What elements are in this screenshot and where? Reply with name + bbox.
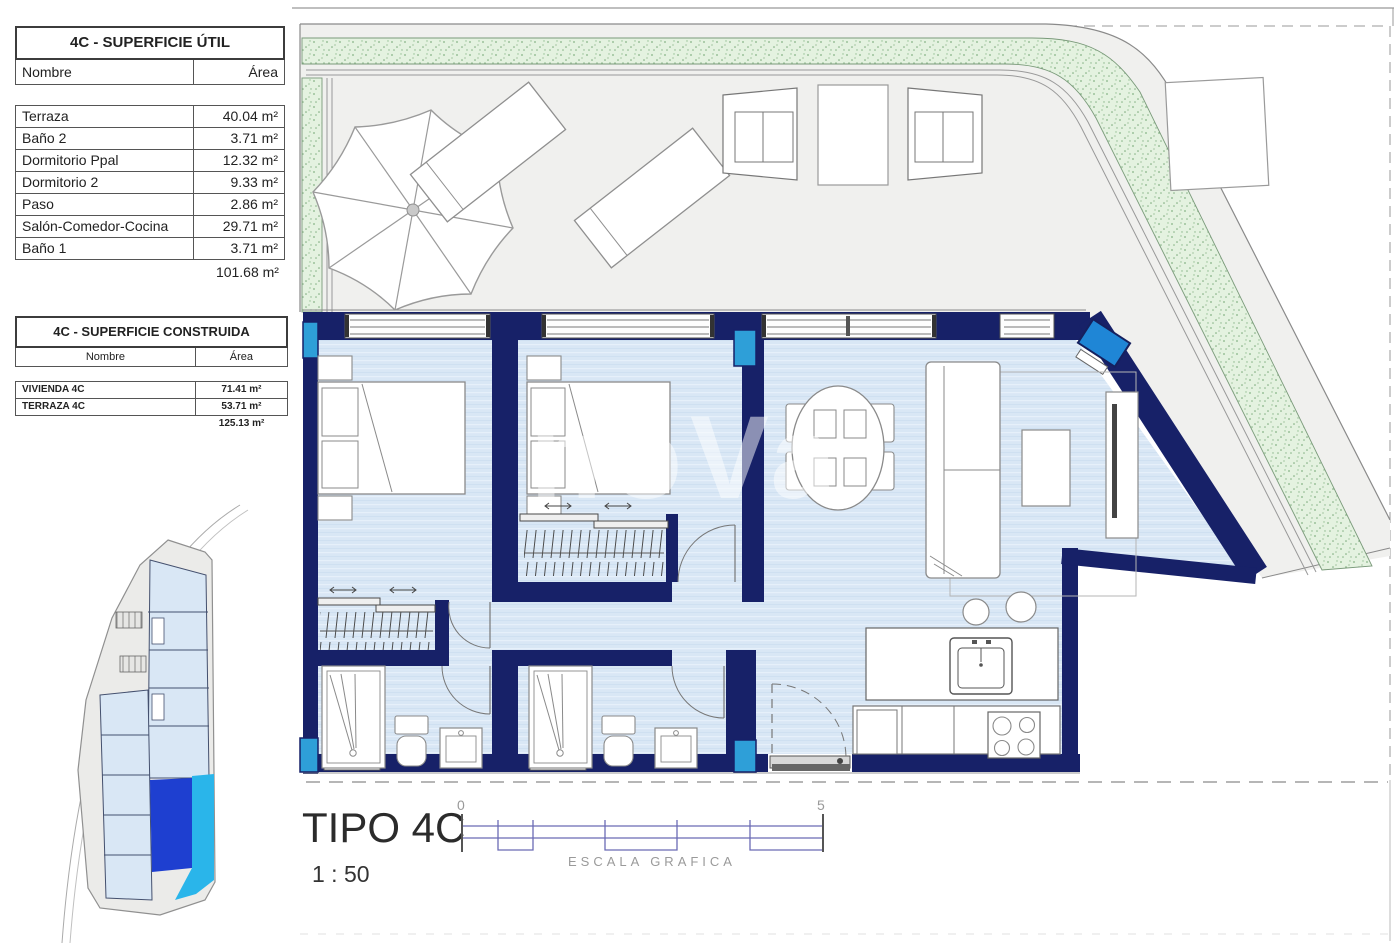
table-total-row: 101.68 m² xyxy=(15,260,285,284)
table-row: TERRAZA 4C 53.71 m² xyxy=(15,399,288,416)
room-name: Dormitorio 2 xyxy=(16,172,193,193)
key-plan-highlight-vivienda xyxy=(150,778,192,872)
column-header-nombre: Nombre xyxy=(16,60,193,84)
room-area: 2.86 m² xyxy=(193,194,284,215)
plan-title: TIPO 4C xyxy=(302,804,465,851)
room-name: TERRAZA 4C xyxy=(16,399,195,415)
hob-icon xyxy=(988,712,1040,758)
scale-bar-caption: ESCALA GRAFICA xyxy=(568,854,736,869)
table-row: Dormitorio 2 9.33 m² xyxy=(15,172,285,194)
room-name: Baño 2 xyxy=(16,128,193,149)
plan-scale: 1 : 50 xyxy=(312,861,370,887)
title-block: TIPO 4C 1 : 50 0 5 ESCALA GRAFICA xyxy=(302,797,825,887)
room-name: Paso xyxy=(16,194,193,215)
scale-bar: 0 5 ESCALA GRAFICA xyxy=(457,797,825,869)
superficie-util-table: 4C - SUPERFICIE ÚTIL Nombre Área Terraza… xyxy=(15,26,285,284)
stairs-icon xyxy=(116,612,142,628)
stairs-icon xyxy=(120,656,146,672)
stool xyxy=(963,599,989,625)
shower-icon xyxy=(322,666,385,768)
terrace-table xyxy=(818,85,888,185)
apartment xyxy=(300,312,1256,774)
total-area: 125.13 m² xyxy=(195,416,288,432)
toilet-icon xyxy=(395,716,428,766)
column-header-nombre: Nombre xyxy=(16,348,195,366)
table-row: VIVIENDA 4C 71.41 m² xyxy=(15,382,288,399)
room-name: Baño 1 xyxy=(16,238,193,259)
room-area: 71.41 m² xyxy=(195,382,287,398)
sink-icon xyxy=(655,728,697,768)
room-name: Terraza xyxy=(16,106,193,127)
terrace-lounge-table xyxy=(1165,78,1269,191)
sink-icon xyxy=(440,728,482,768)
room-name: VIVIENDA 4C xyxy=(16,382,195,398)
column-header-area: Área xyxy=(195,348,287,366)
tv-unit xyxy=(1106,392,1138,538)
kitchen-island xyxy=(866,628,1058,700)
shower-icon xyxy=(529,666,592,768)
superficie-construida-table: 4C - SUPERFICIE CONSTRUIDA Nombre Área V… xyxy=(15,316,288,432)
key-plan xyxy=(62,505,248,943)
room-area: 53.71 m² xyxy=(195,399,287,415)
table-row: Baño 1 3.71 m² xyxy=(15,238,285,260)
table-header: Nombre Área xyxy=(15,60,285,85)
scale-bar-end: 5 xyxy=(817,797,825,813)
terrace-armchair xyxy=(908,88,982,180)
table-row: Salón-Comedor-Cocina 29.71 m² xyxy=(15,216,285,238)
room-area: 3.71 m² xyxy=(193,128,284,149)
table-header: Nombre Área xyxy=(15,348,288,367)
table-body: VIVIENDA 4C 71.41 m² TERRAZA 4C 53.71 m² xyxy=(15,381,288,416)
terrace-armchair xyxy=(723,88,797,180)
column-header-area: Área xyxy=(193,60,284,84)
room-name: Dormitorio Ppal xyxy=(16,150,193,171)
table-body: Terraza 40.04 m² Baño 2 3.71 m² Dormitor… xyxy=(15,105,285,260)
toilet-icon xyxy=(602,716,635,766)
room-area: 40.04 m² xyxy=(193,106,284,127)
sofa xyxy=(926,362,1000,578)
room-name: Salón-Comedor-Cocina xyxy=(16,216,193,237)
room-area: 9.33 m² xyxy=(193,172,284,193)
table-row: Paso 2.86 m² xyxy=(15,194,285,216)
table-title: 4C - SUPERFICIE ÚTIL xyxy=(15,26,285,60)
table-title: 4C - SUPERFICIE CONSTRUIDA xyxy=(15,316,288,348)
stool xyxy=(1006,592,1036,622)
kitchen-counter xyxy=(853,706,1060,758)
table-row: Baño 2 3.71 m² xyxy=(15,128,285,150)
room-area: 12.32 m² xyxy=(193,150,284,171)
room-area: 3.71 m² xyxy=(193,238,284,259)
floorplan-sheet: TIPO 4C 1 : 50 0 5 ESCALA GRAFICA noVa xyxy=(0,0,1400,943)
scale-bar-start: 0 xyxy=(457,797,465,813)
table-total-row: 125.13 m² xyxy=(15,416,288,432)
table-row: Dormitorio Ppal 12.32 m² xyxy=(15,150,285,172)
coffee-table xyxy=(1022,430,1070,506)
room-area: 29.71 m² xyxy=(193,216,284,237)
total-area: 101.68 m² xyxy=(193,260,285,284)
table-row: Terraza 40.04 m² xyxy=(15,106,285,128)
